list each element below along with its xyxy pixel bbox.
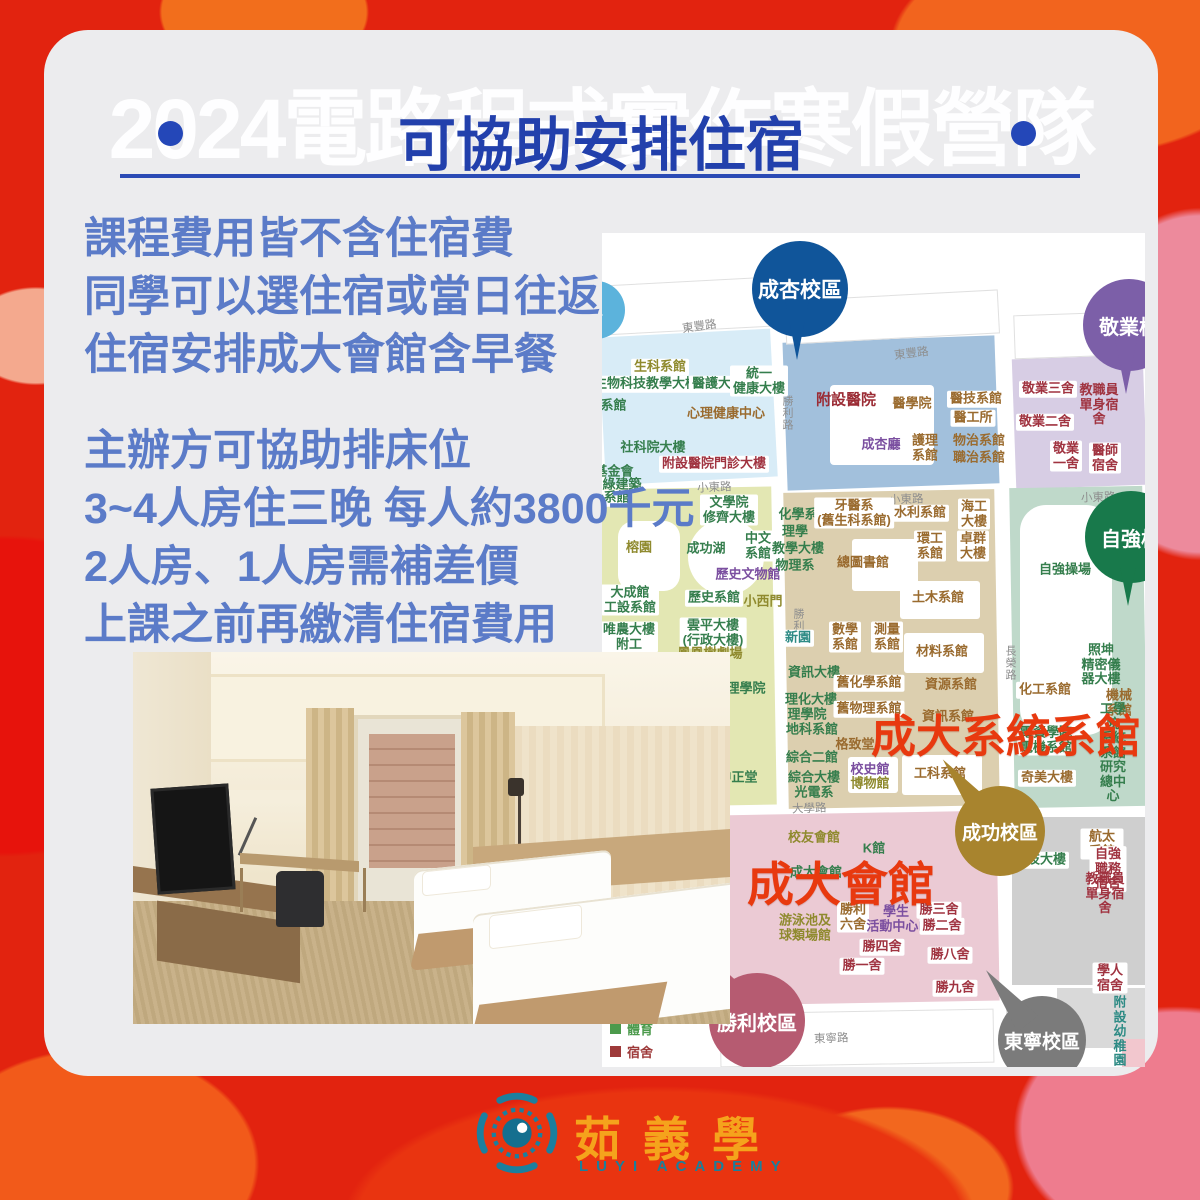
floor-lamp-shade [508, 778, 524, 796]
map-label: 勝四舍 [859, 939, 904, 956]
legend-swatch [610, 1046, 621, 1057]
map-label: 新園 [782, 630, 814, 647]
map-label: 教學大樓 [772, 542, 824, 557]
map-label: 勝九舍 [932, 980, 977, 997]
map-label: 理學 [782, 525, 808, 540]
map-label: 理學院 [726, 682, 765, 697]
map-label: 職治系館 [953, 451, 1005, 466]
map-label: 游泳池及 球類場館 [779, 913, 831, 942]
highlight-text: 成大系統系館 [871, 700, 1141, 765]
road-label: 勝利路 [779, 395, 795, 431]
legend-label: 其他 [627, 1065, 653, 1067]
pillow [421, 864, 490, 896]
bed-skirt [467, 981, 668, 1024]
map-label: 海工 大樓 [958, 498, 990, 529]
map-label: 奇美大樓 [1018, 770, 1076, 787]
info-line: 主辦方可協助排床位 [84, 422, 695, 480]
map-label: 資源系館 [925, 678, 977, 693]
info-paragraph-2: 主辦方可協助排床位 3~4人房住三晚 每人約3800千元 2人房、1人房需補差價… [84, 422, 695, 654]
highlight-text: 成大會館 [747, 846, 935, 915]
map-label: 校友會館 [788, 831, 840, 846]
info-line: 上課之前再繳清住宿費用 [84, 596, 695, 654]
map-label: 綜合二館 [786, 751, 838, 766]
campus-pin: 成功校區 [955, 786, 1045, 876]
map-label: 舊化學系館 [833, 675, 904, 692]
legend-item: 其他 [610, 1065, 653, 1067]
map-label: 格致堂 [835, 738, 874, 753]
map-label: 醫技系館 [947, 391, 1005, 408]
map-label: 醫學院 [892, 397, 931, 412]
map-label: 中文 系館 [742, 530, 774, 561]
map-label: 材料系館 [916, 645, 968, 660]
luyi-logo-icon [474, 1090, 560, 1176]
map-label: 勝二舍 [919, 918, 964, 935]
pin-label: 敬業校 [1099, 311, 1145, 340]
map-label: 小西門 [743, 595, 782, 610]
map-label: 物理系 [775, 559, 814, 574]
map-label: 理化大樓 [785, 693, 837, 708]
map-label: 物治系館 [953, 434, 1005, 449]
info-line: 2人房、1人房需補差價 [84, 538, 695, 596]
map-label: 測量 系館 [871, 621, 903, 652]
legend-label: 宿舍 [627, 1042, 653, 1061]
map-label: 心理健康中心 [687, 407, 765, 422]
map-label: 敬業 一舍 [1050, 440, 1082, 471]
map-label: 化學系 [778, 508, 817, 523]
pillow [489, 903, 582, 949]
info-paragraph-1: 課程費用皆不含住宿費 同學可以選住宿或當日往返 住宿安排成大會館含早餐 [84, 210, 600, 384]
map-legend: 體育宿舍其他 [610, 1019, 653, 1067]
map-label: 博物館 [850, 777, 889, 792]
map-label: 醫工所 [950, 410, 995, 427]
map-label: 環工 系館 [914, 530, 946, 561]
television [150, 783, 235, 895]
map-label: 生科系館 [631, 359, 689, 376]
map-label: 醫師 宿舍 [1089, 442, 1121, 473]
hotel-room-photo [133, 652, 730, 1024]
road-label: 大學路 [792, 799, 827, 816]
map-label: 地科系館 [786, 723, 838, 738]
info-line: 課程費用皆不含住宿費 [84, 210, 600, 268]
pin-label: 自強校 [1101, 523, 1145, 552]
map-label: 教職員單身宿舍 [1085, 872, 1125, 916]
pin-label: 成杏校區 [758, 274, 842, 304]
map-label: 文系館 [602, 399, 627, 414]
title-underline [120, 174, 1080, 178]
map-label: 敬業三舍 [1019, 381, 1077, 398]
map-label: 自強操場 [1039, 563, 1091, 578]
map-label: 生物科技教學大樓 [602, 376, 701, 393]
map-label: 理學院 [787, 708, 826, 723]
map-label: 勝一舍 [839, 958, 884, 975]
map-label: 數學 系館 [829, 621, 861, 652]
map-label: 土木系館 [912, 591, 964, 606]
map-label: 化工系館 [1016, 682, 1074, 699]
pin-label: 成功校區 [962, 818, 1038, 845]
legend-item: 宿舍 [610, 1042, 653, 1061]
info-line: 3~4人房住三晚 每人約3800千元 [84, 480, 695, 538]
map-label: 歷史文物館 [715, 568, 780, 583]
map-label: 附設幼稚園 [1108, 996, 1133, 1067]
window-view-building [369, 734, 455, 868]
logo-subtitle: LUYI ACADEMY [579, 1158, 789, 1175]
map-label: 勝八舍 [927, 947, 972, 964]
road-label: 小東路 [697, 478, 732, 496]
page-title: 可協助安排住宿 [44, 98, 1158, 182]
pin-label: 東寧校區 [1004, 1027, 1080, 1054]
map-label: 敬業二舍 [1016, 414, 1074, 431]
map-label: 資訊大樓 [788, 666, 840, 681]
map-label: 統一 健康大樓 [730, 365, 788, 396]
map-label: 照坤 精密儀器大樓 [1079, 643, 1123, 687]
map-label: 學人宿舍 [1093, 962, 1128, 993]
road-label: 長榮路 [1002, 645, 1018, 681]
legend-swatch [610, 1023, 621, 1034]
map-label: 文學院 修齊大樓 [700, 494, 758, 525]
map-label: 水利系館 [891, 505, 949, 522]
map-label: 附設醫院 [816, 393, 876, 410]
road-label: 東寧路 [814, 1029, 849, 1046]
info-line: 住宿安排成大會館含早餐 [84, 326, 600, 384]
desk-chair [276, 871, 324, 927]
map-label: 總圖書館 [837, 556, 889, 571]
map-label: 牙醫系 (舊生科系館) [814, 497, 894, 528]
info-line: 同學可以選住宿或當日往返 [84, 268, 600, 326]
map-label: 卓群 大樓 [957, 530, 989, 561]
map-label: 成杏廳 [861, 438, 900, 453]
campus-pin: 成杏校區 [752, 241, 848, 337]
map-label: 護理 系館 [912, 433, 938, 462]
pin-label: 區 [602, 300, 603, 320]
desk-lamp [238, 817, 257, 856]
map-label: 綜合大樓 光電系 [788, 770, 840, 799]
